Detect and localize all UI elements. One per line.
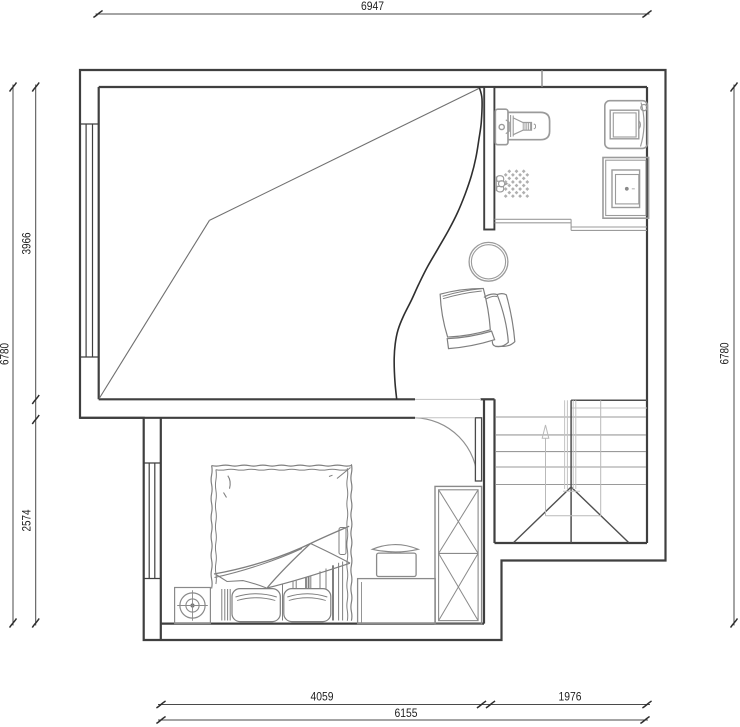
svg-text:6155: 6155: [395, 706, 418, 720]
svg-text:6780: 6780: [0, 343, 12, 365]
svg-text:6780: 6780: [718, 342, 732, 364]
svg-text:3966: 3966: [20, 232, 34, 254]
svg-text:4059: 4059: [311, 690, 334, 704]
svg-text:6947: 6947: [361, 0, 384, 13]
svg-text:1976: 1976: [559, 690, 582, 704]
svg-text:2574: 2574: [20, 509, 34, 531]
